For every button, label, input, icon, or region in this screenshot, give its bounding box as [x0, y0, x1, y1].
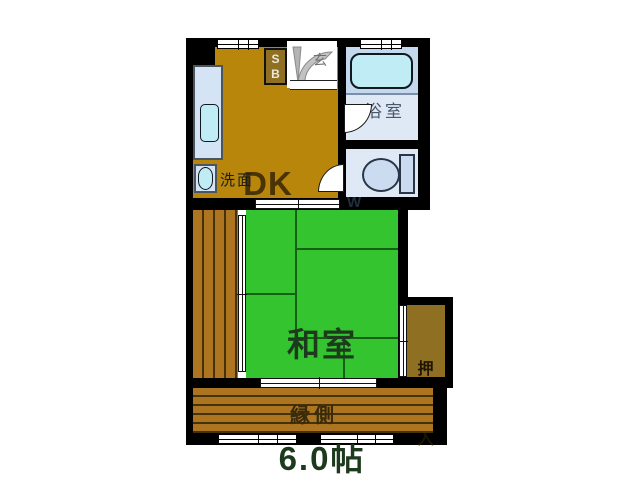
washitsu-label: 和室 6.0帖 — [247, 250, 397, 480]
bathtub-icon — [350, 53, 413, 89]
shoebox-line1: S — [266, 52, 285, 67]
washitsu-name: 和室 — [247, 326, 397, 364]
entrance-label: 玄 — [313, 50, 327, 70]
kitchen-sink-icon — [200, 104, 219, 142]
entrance-threshold — [290, 80, 337, 90]
wall-right-upper — [418, 38, 430, 210]
window-top-right — [360, 39, 402, 49]
engawa-label: 縁側 — [290, 399, 338, 428]
wall-washitsu-right — [398, 210, 408, 302]
shoebox-line2: B — [266, 67, 285, 82]
washstand-label: 洗面 — [220, 169, 254, 190]
closet-line1: 押 — [406, 358, 445, 381]
washbasin-icon — [198, 167, 213, 190]
wall-dk-corner — [193, 47, 215, 65]
floor-plan: DK 4.5帖 洗面 S B 玄 浴室 W C 和室 6.0帖 — [0, 0, 640, 480]
sliding-door-corridor-washitsu — [238, 215, 246, 372]
toilet-tank-icon — [399, 154, 415, 194]
washitsu-size: 6.0帖 — [247, 440, 397, 478]
wall-bath-wc — [337, 140, 430, 149]
side-corridor — [193, 210, 238, 378]
sliding-door-dk-washitsu — [255, 199, 340, 209]
window-top-left — [217, 39, 259, 49]
shoebox: S B — [264, 48, 287, 85]
window-bottom-right — [320, 434, 394, 444]
toilet-icon — [362, 158, 400, 192]
window-bottom-left — [218, 434, 297, 444]
sliding-door-washitsu-engawa — [260, 378, 377, 388]
sliding-door-closet — [399, 305, 407, 377]
wall-left — [186, 38, 193, 445]
